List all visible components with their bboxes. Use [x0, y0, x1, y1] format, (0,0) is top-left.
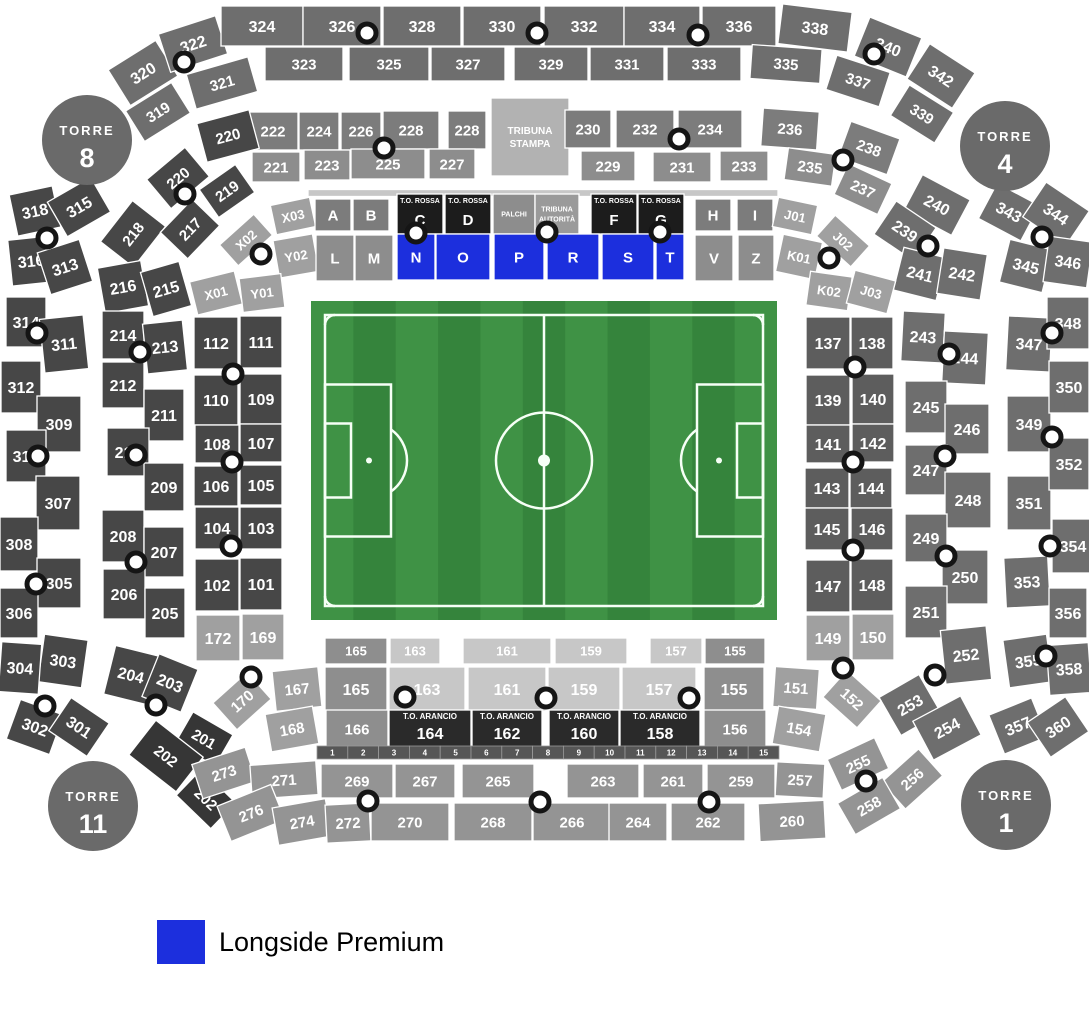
section-329[interactable]: 329 [514, 47, 588, 81]
svg-text:106: 106 [203, 479, 230, 496]
svg-text:8: 8 [79, 143, 94, 173]
section-p[interactable]: P [494, 234, 544, 280]
section-150[interactable]: 150 [852, 614, 894, 660]
gate-marker [670, 130, 688, 148]
section-260[interactable]: 260 [758, 800, 826, 841]
svg-text:338: 338 [801, 19, 830, 39]
section-109[interactable]: 109 [240, 374, 282, 424]
svg-text:349: 349 [1016, 417, 1043, 434]
svg-text:TRIBUNA: TRIBUNA [508, 126, 553, 137]
svg-text:311: 311 [50, 335, 78, 355]
svg-text:334: 334 [649, 19, 676, 36]
section-147[interactable]: 147 [806, 560, 850, 612]
gate-marker [936, 447, 954, 465]
svg-text:328: 328 [409, 19, 436, 36]
section-264[interactable]: 264 [609, 803, 667, 841]
gate-marker [127, 553, 145, 571]
section-338[interactable]: 338 [778, 4, 852, 52]
section-306[interactable]: 306 [0, 588, 38, 638]
svg-text:208: 208 [110, 529, 137, 546]
section-v[interactable]: V [695, 235, 733, 281]
svg-text:TRIBUNA: TRIBUNA [541, 207, 573, 214]
gate-marker [531, 793, 549, 811]
gate-marker [1041, 537, 1059, 555]
svg-text:147: 147 [815, 579, 842, 596]
section-165[interactable]: 165 [325, 667, 387, 711]
section-d[interactable]: T.O. ROSSAD [445, 194, 491, 234]
svg-text:160: 160 [571, 726, 598, 743]
svg-text:232: 232 [632, 121, 657, 138]
section-164[interactable]: T.O. ARANCIO164 [389, 710, 471, 748]
section-103[interactable]: 103 [240, 507, 282, 549]
svg-text:144: 144 [858, 481, 885, 498]
gate-marker [834, 659, 852, 677]
section-l[interactable]: L [316, 235, 354, 281]
svg-text:1: 1 [998, 808, 1013, 838]
svg-text:331: 331 [614, 56, 639, 73]
section-267[interactable]: 267 [395, 764, 455, 798]
svg-text:7: 7 [515, 749, 520, 758]
svg-text:107: 107 [248, 436, 275, 453]
svg-text:327: 327 [455, 56, 480, 73]
svg-text:245: 245 [913, 400, 940, 417]
svg-text:PALCHI: PALCHI [501, 212, 527, 219]
section-palchi[interactable]: PALCHI [493, 194, 535, 234]
svg-text:236: 236 [777, 121, 803, 140]
svg-text:214: 214 [110, 328, 137, 345]
svg-text:146: 146 [859, 522, 886, 539]
section-235[interactable]: 235 [784, 148, 836, 186]
section-308[interactable]: 308 [0, 517, 38, 571]
svg-text:323: 323 [291, 56, 316, 73]
svg-text:1: 1 [330, 749, 335, 758]
svg-text:165: 165 [345, 644, 367, 659]
section-166[interactable]: 166 [326, 710, 388, 748]
section-h[interactable]: H [695, 199, 731, 231]
section-216[interactable]: 216 [97, 261, 148, 314]
svg-text:F: F [609, 212, 618, 229]
section-323[interactable]: 323 [265, 47, 343, 81]
section-163[interactable]: 163 [390, 638, 440, 664]
gate-marker [680, 689, 698, 707]
gate-marker [359, 792, 377, 810]
section-101[interactable]: 101 [240, 558, 282, 610]
section-m[interactable]: M [355, 235, 393, 281]
section-265[interactable]: 265 [462, 764, 534, 798]
svg-text:235: 235 [796, 158, 823, 178]
svg-text:P: P [514, 249, 524, 266]
section-321[interactable]: 321 [186, 57, 257, 109]
gate-marker [375, 139, 393, 157]
section-y01[interactable]: Y01 [239, 274, 285, 313]
svg-text:157: 157 [665, 644, 687, 659]
section-229[interactable]: 229 [581, 151, 635, 181]
svg-text:T: T [665, 249, 674, 266]
section-162[interactable]: T.O. ARANCIO162 [472, 710, 542, 748]
section-274[interactable]: 274 [272, 799, 332, 846]
svg-text:225: 225 [375, 156, 400, 173]
section-221[interactable]: 221 [252, 152, 300, 182]
section-252[interactable]: 252 [940, 626, 991, 685]
gate-marker [396, 688, 414, 706]
section-x01[interactable]: X01 [190, 271, 243, 315]
section-211[interactable]: 211 [144, 389, 184, 441]
section-172[interactable]: 172 [196, 615, 240, 661]
gate-marker [1043, 324, 1061, 342]
svg-text:351: 351 [1016, 496, 1043, 513]
section-151[interactable]: 151 [773, 667, 820, 710]
section-161[interactable]: 161 [463, 638, 551, 664]
svg-text:212: 212 [110, 378, 137, 395]
svg-text:246: 246 [954, 422, 981, 439]
svg-text:142: 142 [860, 436, 887, 453]
tower-4: TORRE4 [960, 101, 1050, 191]
svg-text:163: 163 [404, 644, 426, 659]
svg-text:T.O. ARANCIO: T.O. ARANCIO [557, 712, 611, 721]
svg-text:234: 234 [697, 121, 723, 138]
section-148[interactable]: 148 [851, 559, 893, 611]
section-245[interactable]: 245 [905, 381, 947, 433]
gate-marker [857, 772, 875, 790]
section-335[interactable]: 335 [750, 45, 822, 84]
svg-text:228: 228 [398, 122, 423, 139]
section-111[interactable]: 111 [240, 316, 282, 368]
svg-text:252: 252 [952, 646, 980, 666]
stadium-seating-page: 3203223243263283303323343363383403423193… [0, 0, 1089, 1032]
svg-text:267: 267 [412, 773, 437, 790]
gate-marker [844, 453, 862, 471]
section-360[interactable]: 360 [1027, 697, 1089, 758]
section-268[interactable]: 268 [454, 803, 532, 841]
gate-marker [940, 345, 958, 363]
svg-text:353: 353 [1013, 574, 1041, 592]
svg-text:312: 312 [8, 380, 35, 397]
section-353[interactable]: 353 [1004, 556, 1051, 608]
svg-text:138: 138 [859, 336, 886, 353]
svg-text:251: 251 [913, 605, 940, 622]
section-140[interactable]: 140 [852, 374, 894, 424]
section-351[interactable]: 351 [1007, 476, 1051, 530]
gate-marker [700, 793, 718, 811]
svg-text:265: 265 [485, 773, 510, 790]
section-k02[interactable]: K02 [806, 271, 852, 311]
section-107[interactable]: 107 [240, 424, 282, 462]
section-144[interactable]: 144 [850, 468, 892, 508]
section-o[interactable]: O [436, 234, 490, 280]
section-a[interactable]: A [315, 199, 351, 231]
svg-text:T.O. ARANCIO: T.O. ARANCIO [633, 712, 687, 721]
section-158[interactable]: T.O. ARANCIO158 [620, 710, 700, 748]
svg-text:T.O. ARANCIO: T.O. ARANCIO [403, 712, 457, 721]
section-233[interactable]: 233 [720, 151, 768, 181]
svg-text:150: 150 [860, 630, 887, 647]
svg-text:151: 151 [783, 680, 809, 699]
svg-text:159: 159 [580, 644, 602, 659]
section-149[interactable]: 149 [806, 615, 850, 661]
svg-text:231: 231 [669, 159, 694, 176]
section-333[interactable]: 333 [667, 47, 741, 81]
section-f[interactable]: T.O. ROSSAF [591, 194, 637, 234]
section-152[interactable]: 152 [823, 670, 881, 728]
svg-text:247: 247 [913, 463, 940, 480]
svg-text:161: 161 [494, 682, 521, 699]
section-230[interactable]: 230 [565, 110, 611, 148]
section-139[interactable]: 139 [806, 375, 850, 425]
svg-text:308: 308 [6, 537, 33, 554]
section-j01[interactable]: J01 [772, 197, 817, 235]
section-212[interactable]: 212 [102, 362, 144, 408]
stadium-map: 3203223243263283303323343363383403423193… [0, 0, 1089, 1032]
section-j03[interactable]: J03 [846, 270, 895, 314]
gate-marker [176, 185, 194, 203]
svg-text:226: 226 [348, 123, 373, 140]
section-x03[interactable]: X03 [270, 197, 315, 235]
svg-text:261: 261 [660, 773, 685, 790]
svg-text:156: 156 [722, 721, 747, 738]
section-303[interactable]: 303 [38, 634, 88, 688]
gate-marker [127, 446, 145, 464]
section-232[interactable]: 232 [616, 110, 674, 148]
svg-text:305: 305 [46, 576, 73, 593]
svg-text:272: 272 [335, 815, 361, 833]
section-161[interactable]: 161 [468, 667, 546, 711]
section-259[interactable]: 259 [707, 764, 775, 798]
svg-text:109: 109 [248, 392, 275, 409]
svg-text:157: 157 [646, 682, 673, 699]
tower-1: TORRE1 [961, 760, 1051, 850]
svg-text:163: 163 [414, 682, 441, 699]
section-270[interactable]: 270 [371, 803, 449, 841]
svg-text:12: 12 [667, 749, 676, 758]
svg-text:333: 333 [691, 56, 716, 73]
section-169[interactable]: 169 [242, 614, 284, 660]
section-155[interactable]: 155 [705, 638, 765, 664]
svg-text:209: 209 [151, 480, 178, 497]
section-242[interactable]: 242 [937, 248, 988, 300]
gate-marker [36, 697, 54, 715]
section-b[interactable]: B [353, 199, 389, 231]
svg-text:229: 229 [595, 158, 620, 175]
svg-text:155: 155 [724, 644, 746, 659]
section-s[interactable]: S [602, 234, 654, 280]
section-231[interactable]: 231 [653, 152, 711, 182]
section-z[interactable]: Z [738, 235, 774, 281]
section-145[interactable]: 145 [805, 508, 849, 550]
section-224[interactable]: 224 [299, 112, 339, 150]
svg-text:13: 13 [698, 749, 707, 758]
svg-text:V: V [709, 250, 719, 267]
section-228[interactable]: 228 [448, 111, 486, 149]
svg-text:350: 350 [1056, 380, 1083, 397]
svg-text:263: 263 [590, 773, 615, 790]
gate-marker [29, 447, 47, 465]
gate-marker [1037, 647, 1055, 665]
section-215[interactable]: 215 [140, 261, 191, 316]
section-160[interactable]: T.O. ARANCIO160 [549, 710, 619, 748]
gate-marker [131, 343, 149, 361]
section-227[interactable]: 227 [429, 149, 475, 179]
section-105[interactable]: 105 [240, 465, 282, 505]
section-311[interactable]: 311 [39, 315, 88, 373]
svg-text:166: 166 [344, 721, 369, 738]
section-tribuna-stampa[interactable]: TRIBUNASTAMPA [491, 98, 569, 176]
section-i[interactable]: I [737, 199, 773, 231]
section-263[interactable]: 263 [567, 764, 639, 798]
svg-text:354: 354 [1060, 539, 1087, 556]
section-328[interactable]: 328 [383, 6, 461, 46]
gate-marker [834, 151, 852, 169]
section-165[interactable]: 165 [325, 638, 387, 664]
svg-text:148: 148 [859, 578, 886, 595]
svg-text:105: 105 [248, 478, 275, 495]
svg-text:TORRE: TORRE [59, 123, 114, 138]
section-332[interactable]: 332 [544, 6, 624, 46]
section-154[interactable]: 154 [772, 706, 826, 752]
svg-text:139: 139 [815, 393, 842, 410]
gate-marker [407, 224, 425, 242]
svg-text:4: 4 [997, 149, 1012, 179]
section-325[interactable]: 325 [349, 47, 429, 81]
section-236[interactable]: 236 [761, 108, 820, 150]
gate-marker [242, 668, 260, 686]
gate-marker [175, 53, 193, 71]
section-209[interactable]: 209 [144, 463, 184, 511]
gate-marker [223, 453, 241, 471]
section-206[interactable]: 206 [103, 569, 145, 619]
section-167[interactable]: 167 [272, 667, 322, 712]
svg-text:6: 6 [484, 749, 489, 758]
section-205[interactable]: 205 [145, 588, 185, 638]
gate-marker [528, 24, 546, 42]
svg-text:11: 11 [636, 749, 645, 758]
section-112[interactable]: 112 [194, 317, 238, 369]
svg-text:D: D [463, 212, 474, 229]
section-159[interactable]: 159 [548, 667, 620, 711]
section-143[interactable]: 143 [805, 468, 849, 508]
row-number-strip: 123456789101112131415 [317, 746, 779, 759]
svg-text:102: 102 [204, 578, 231, 595]
svg-text:164: 164 [417, 726, 444, 743]
svg-text:Z: Z [751, 250, 760, 267]
legend-swatch [157, 920, 205, 964]
svg-text:205: 205 [152, 606, 179, 623]
gate-marker [919, 237, 937, 255]
svg-text:260: 260 [779, 813, 805, 831]
section-207[interactable]: 207 [144, 527, 184, 577]
gate-marker [38, 229, 56, 247]
svg-text:207: 207 [151, 545, 178, 562]
section-159[interactable]: 159 [555, 638, 627, 664]
svg-text:309: 309 [46, 417, 73, 434]
section-327[interactable]: 327 [431, 47, 505, 81]
section-156[interactable]: 156 [704, 710, 766, 748]
gate-marker [358, 24, 376, 42]
svg-text:356: 356 [1055, 606, 1082, 623]
section-155[interactable]: 155 [704, 667, 764, 711]
svg-text:269: 269 [344, 773, 369, 790]
svg-text:257: 257 [787, 772, 813, 790]
section-248[interactable]: 248 [945, 472, 991, 528]
svg-text:325: 325 [376, 56, 401, 73]
gate-marker [820, 249, 838, 267]
section-157[interactable]: 157 [650, 638, 702, 664]
section-168[interactable]: 168 [265, 706, 319, 752]
svg-text:14: 14 [728, 749, 737, 758]
section-304[interactable]: 304 [0, 642, 42, 695]
svg-text:248: 248 [955, 493, 982, 510]
svg-text:335: 335 [773, 56, 799, 75]
football-pitch [311, 301, 777, 620]
section-219[interactable]: 219 [199, 164, 255, 217]
svg-text:159: 159 [571, 682, 598, 699]
section-312[interactable]: 312 [1, 361, 41, 413]
svg-text:262: 262 [695, 814, 720, 831]
gate-marker [538, 223, 556, 241]
gate-marker [937, 547, 955, 565]
section-217[interactable]: 217 [160, 199, 219, 258]
svg-text:15: 15 [759, 749, 768, 758]
gate-marker [1033, 228, 1051, 246]
gate-marker [846, 358, 864, 376]
section-307[interactable]: 307 [36, 476, 80, 530]
section-269[interactable]: 269 [321, 764, 393, 798]
gate-marker [27, 575, 45, 593]
section-324[interactable]: 324 [221, 6, 303, 46]
svg-text:TORRE: TORRE [977, 129, 1032, 144]
section-261[interactable]: 261 [643, 764, 703, 798]
svg-text:L: L [330, 250, 339, 267]
legend: Longside Premium [157, 920, 444, 964]
svg-text:B: B [366, 207, 377, 224]
section-336[interactable]: 336 [702, 6, 776, 46]
svg-text:9: 9 [577, 749, 582, 758]
svg-text:T.O. ROSSA: T.O. ROSSA [641, 198, 681, 205]
section-350[interactable]: 350 [1049, 361, 1089, 413]
section-102[interactable]: 102 [195, 559, 239, 611]
section-y02[interactable]: Y02 [273, 234, 319, 278]
section-r[interactable]: R [547, 234, 599, 280]
svg-text:306: 306 [6, 606, 33, 623]
svg-text:112: 112 [203, 336, 229, 353]
svg-text:5: 5 [453, 749, 458, 758]
section-301[interactable]: 301 [49, 698, 110, 757]
svg-text:8: 8 [546, 749, 551, 758]
section-246[interactable]: 246 [945, 404, 989, 454]
gate-marker [28, 324, 46, 342]
legend-label: Longside Premium [219, 927, 444, 958]
section-223[interactable]: 223 [304, 150, 350, 180]
svg-text:336: 336 [726, 19, 753, 36]
svg-text:330: 330 [489, 19, 516, 36]
svg-text:249: 249 [913, 531, 940, 548]
section-331[interactable]: 331 [590, 47, 664, 81]
gate-marker [844, 541, 862, 559]
svg-text:A: A [328, 207, 339, 224]
svg-text:161: 161 [496, 644, 518, 659]
svg-text:233: 233 [731, 158, 756, 175]
svg-text:155: 155 [721, 682, 748, 699]
section-220[interactable]: 220 [197, 110, 260, 163]
section-137[interactable]: 137 [806, 317, 850, 369]
section-257[interactable]: 257 [775, 762, 825, 798]
svg-text:358: 358 [1055, 661, 1083, 680]
svg-text:101: 101 [248, 577, 275, 594]
svg-text:104: 104 [204, 521, 231, 538]
svg-text:223: 223 [314, 157, 339, 174]
tower-11: TORRE11 [48, 761, 138, 851]
svg-text:111: 111 [249, 335, 274, 352]
section-356[interactable]: 356 [1049, 588, 1087, 638]
